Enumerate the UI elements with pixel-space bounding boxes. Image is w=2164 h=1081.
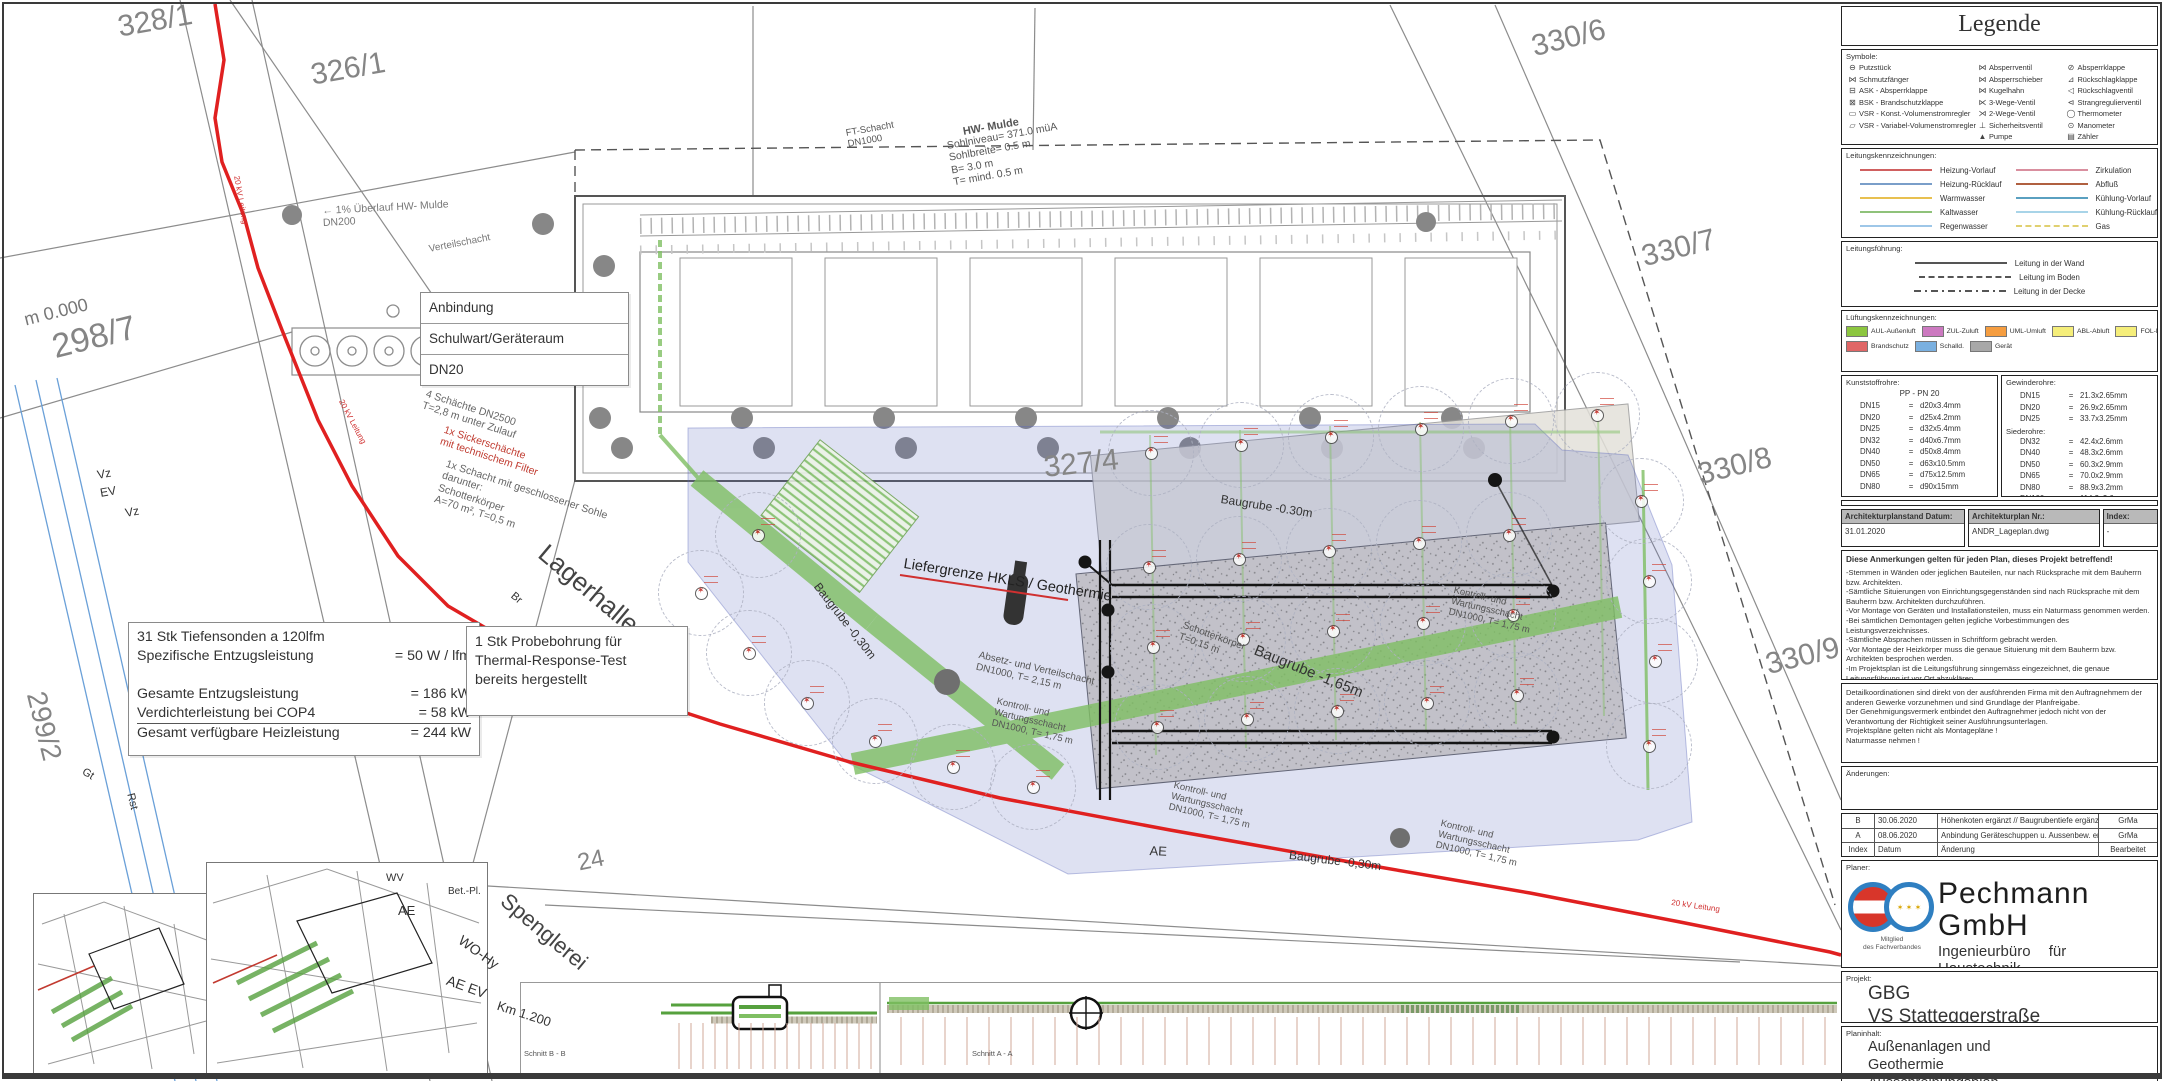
borehole-marker-icon: ✶ — [1145, 560, 1153, 569]
routing-label: Leitung in der Wand — [2015, 259, 2085, 268]
vent-swatch — [2052, 326, 2074, 337]
pipe-size: d20x3.4mm — [1920, 400, 1993, 412]
anbindung-line-2: Schulwart/Geräteraum — [421, 324, 628, 355]
pipe-dn: DN25 — [2006, 413, 2062, 425]
project-label: Projekt: — [1846, 974, 2153, 983]
member-note: Mitglied des Fachverbandes — [1846, 936, 1938, 952]
boiler-pipe-row: DN50=60.3x2.9mm — [2006, 459, 2153, 471]
legend-symbol-item: ⊙Manometer — [2064, 120, 2153, 132]
legend-linetype-item: Warmwasser — [1846, 191, 2002, 205]
borehole-tag — [1652, 729, 1666, 736]
vent-swatch — [1970, 341, 1992, 352]
linetype-sample — [2016, 169, 2088, 171]
annotation-vz-2: Vz — [124, 504, 140, 520]
legend-linetypes-cols: Heizung-VorlaufHeizung-RücklaufWarmwasse… — [1846, 163, 2153, 233]
legend-linetype-col: Heizung-VorlaufHeizung-RücklaufWarmwasse… — [1846, 163, 2002, 233]
legend-symbol-item: ⋈Kugelhahn — [1976, 85, 2065, 97]
arch-plan-index-label: Index: — [2104, 510, 2157, 524]
plan-content-box: Planinhalt: Außenanlagen undGeothermieAu… — [1841, 1026, 2158, 1081]
borehole-marker-icon: ✶ — [1645, 574, 1653, 583]
inset-map-2-drawing — [207, 863, 487, 1077]
pipe-size: d90x15mm — [1920, 481, 1993, 493]
borehole-tag — [1514, 404, 1528, 411]
linetype-label: Heizung-Vorlauf — [1940, 166, 1995, 175]
legend-symbol-glyph-icon: ⊙ — [2064, 121, 2077, 130]
boiler-pipe-row: DN40=48.3x2.6mm — [2006, 447, 2153, 459]
pipe-size: 70.0x2.9mm — [2080, 470, 2153, 482]
vent-label: Schalld. — [1940, 343, 1964, 350]
vent-label: Brandschutz — [1871, 343, 1909, 350]
revision-row: B30.06.2020Höhenkoten ergänzt // Baugrub… — [1842, 814, 2157, 829]
borehole-symbol: ✶ — [1376, 500, 1462, 586]
legend-symbol-item: ◁Rückschlagventil — [2064, 85, 2153, 97]
borehole-tag — [761, 518, 775, 525]
pipe-eq: = — [2062, 447, 2080, 459]
capacity-value: = 186 kW — [411, 685, 471, 704]
boiler-pipes-rows: DN32=42.4x2.6mmDN40=48.3x2.6mmDN50=60.3x… — [2006, 436, 2153, 498]
plan-status-row: Architekturplanstand Datum: 31.01.2020 A… — [1841, 509, 2158, 547]
arch-plan-index-cell: Index: - — [2103, 509, 2158, 547]
legend-vent-box: Lüftungskennzeichnungen: AUL-AußenluftZU… — [1841, 310, 2158, 372]
borehole-tag — [1036, 770, 1050, 777]
plastic-pipe-row: DN65=d75x12.5mm — [1846, 469, 1993, 481]
legend-symbol-label: Absperrklappe — [2077, 63, 2125, 72]
legend-symbol-label: Pumpe — [1989, 132, 2012, 141]
linetype-label: Warmwasser — [1940, 194, 1985, 203]
pipe-dn: DN20 — [1846, 412, 1902, 424]
pipe-size: d63x10.5mm — [1920, 458, 1993, 470]
routing-item: Leitung im Boden — [1846, 270, 2153, 284]
routing-label: Leitung in der Decke — [2014, 287, 2086, 296]
legend-symbol-label: Schmutzfänger — [1859, 75, 1909, 84]
linetype-label: Abfluß — [2096, 180, 2119, 189]
borehole-tag — [1152, 550, 1166, 557]
legend-linetype-item: Regenwasser — [1846, 219, 2002, 233]
legend-symbol-label: BSK - Brandschutzklappe — [1859, 98, 1943, 107]
borehole-symbol: ✶ — [990, 744, 1076, 830]
borehole-marker-icon: ✶ — [1507, 414, 1515, 423]
pipe-dn: DN40 — [1846, 446, 1902, 458]
legend-linetype-item: Gas — [2002, 219, 2158, 233]
legend-symbol-item: ▲Pumpe — [1976, 131, 2065, 143]
legend-symbol-glyph-icon: ⊿ — [2064, 75, 2077, 84]
legend-symbol-label: ASK - Absperrklappe — [1859, 86, 1928, 95]
linetype-sample — [1860, 169, 1932, 171]
vent-swatch — [1922, 326, 1944, 337]
pipe-dn: DN100 — [2006, 493, 2062, 497]
legend-linetype-item: Kühlung-Vorlauf — [2002, 191, 2158, 205]
legend-symbol-label: Zähler — [2077, 132, 2098, 141]
legend-symbol-item: ⊖Putzstück — [1846, 62, 1976, 74]
borehole-tag — [1426, 606, 1440, 613]
borehole-symbol: ✶ — [1106, 524, 1192, 610]
company-name: Pechmann GmbH — [1938, 878, 2153, 941]
pipe-eq: = — [2062, 470, 2080, 482]
borehole-symbol: ✶ — [910, 724, 996, 810]
legend-symbol-item: ⊠BSK - Brandschutzklappe — [1846, 97, 1976, 109]
pipe-eq: = — [1902, 435, 1920, 447]
capacity-row: 31 Stk Tiefensonden a 120lfm — [137, 628, 471, 647]
legend-symbol-glyph-icon: ⋉ — [1976, 98, 1989, 107]
borehole-symbol: ✶ — [1606, 538, 1692, 624]
arch-plan-date-label: Architekturplanstand Datum: — [1842, 510, 1964, 524]
legend-symbol-glyph-icon: ▲ — [1976, 132, 1989, 141]
vent-label: AUL-Außenluft — [1871, 328, 1916, 335]
eu-stars-logo-icon: ✶ ✶ ✶ — [1884, 882, 1934, 932]
plastic-pipe-row: DN15=d20x3.4mm — [1846, 400, 1993, 412]
revision-cell: Datum — [1875, 843, 1938, 857]
annotation-vz-1: Vz — [96, 466, 112, 482]
geothermal-capacity-box: 31 Stk Tiefensonden a 120lfmSpezifische … — [128, 622, 480, 756]
plastic-pipe-row: DN40=d50x8.4mm — [1846, 446, 1993, 458]
pipe-dn: DN20 — [2006, 402, 2062, 414]
annotation-wv: WV — [386, 872, 404, 885]
borehole-marker-icon: ✶ — [1513, 688, 1521, 697]
linetype-sample — [1860, 197, 1932, 199]
borehole-tag — [956, 750, 970, 757]
vent-swatch — [1915, 341, 1937, 352]
note-item: -Sämtliche Situierungen von Einrichtungs… — [1846, 587, 2153, 606]
note2-item: Projektspläne gelten nicht als Montagepl… — [1846, 726, 2153, 736]
plan-content-line: Geothermie — [1846, 1056, 2153, 1074]
inset-map-1 — [33, 893, 222, 1078]
plan-sheet: ✶✶✶✶✶✶✶✶✶✶✶✶✶✶✶✶✶✶✶✶✶✶✶✶✶✶✶✶✶✶✶✶ 328/132… — [0, 0, 2164, 1081]
vent-label: FOL-Fortluft — [2140, 328, 2158, 335]
boiler-pipe-row: DN100=114.3x3.6mm — [2006, 493, 2153, 497]
legend-symbol-label: VSR - Variabel-Volumenstromregler — [1859, 121, 1976, 130]
capacity-value: = 58 kW — [419, 704, 471, 723]
pipe-size: d75x12.5mm — [1920, 469, 1993, 481]
legend-symbol-glyph-icon: ▭ — [1846, 109, 1859, 118]
legend-symbol-glyph-icon: ⋈ — [1846, 75, 1859, 84]
borehole-marker-icon: ✶ — [1149, 640, 1157, 649]
legend-symbol-label: Putzstück — [1859, 63, 1891, 72]
plastic-pipes-label: Kunststoffrohre: — [1846, 378, 1993, 387]
vent-item: UML-Umluft — [1985, 326, 2046, 337]
borehole-tag — [1332, 534, 1346, 541]
revision-cell: Höhenkoten ergänzt // Baugrubentiefe erg… — [1938, 814, 2099, 828]
legend-routing-items: Leitung in der WandLeitung im BodenLeitu… — [1846, 256, 2153, 298]
capacity-value: = 50 W / lfm — [395, 647, 471, 666]
legend-symbol-glyph-icon: ⊖ — [1846, 63, 1859, 72]
pipe-eq: = — [2062, 402, 2080, 414]
vent-item: AUL-Außenluft — [1846, 326, 1916, 337]
pipe-eq: = — [2062, 459, 2080, 471]
company-tagline: Ingenieurbüro für Haustechnik — [1938, 943, 2153, 968]
pipe-dn: DN80 — [1846, 481, 1902, 493]
pipe-size: 60.3x2.9mm — [2080, 459, 2153, 471]
borehole-tag — [1652, 564, 1666, 571]
revision-cell: A — [1842, 829, 1875, 843]
borehole-tag — [1242, 542, 1256, 549]
legend-symbol-glyph-icon: ⋊ — [1976, 109, 1989, 118]
vent-item: Schalld. — [1915, 341, 1964, 352]
borehole-marker-icon: ✶ — [697, 586, 705, 595]
linetype-label: Heizung-Rücklauf — [1940, 180, 2002, 189]
plastic-pipes-header: PP - PN 20 — [1846, 389, 1993, 398]
pipe-eq: = — [2062, 482, 2080, 494]
routing-label: Leitungsführung: — [1846, 244, 2153, 253]
vent-item: ABL-Abluft — [2052, 326, 2110, 337]
plastic-pipes-rows: DN15=d20x3.4mmDN20=d25x4.2mmDN25=d32x5.4… — [1846, 400, 1993, 492]
capacity-label: Gesamt verfügbare Heizleistung — [137, 724, 340, 743]
borehole-symbol: ✶ — [1598, 458, 1684, 544]
note2-item: Detailkoordinationen sind direkt von der… — [1846, 688, 2153, 707]
pipe-eq: = — [1902, 481, 1920, 493]
borehole-tag — [1250, 702, 1264, 709]
borehole-tag — [1246, 622, 1260, 629]
borehole-symbol: ✶ — [1204, 676, 1290, 762]
pipe-eq: = — [1902, 446, 1920, 458]
borehole-tag — [1156, 630, 1170, 637]
capacity-label: 31 Stk Tiefensonden a 120lfm — [137, 628, 325, 647]
linetype-label: Regenwasser — [1940, 222, 1988, 231]
borehole-symbol: ✶ — [1288, 394, 1374, 480]
borehole-marker-icon: ✶ — [871, 734, 879, 743]
boiler-pipe-row: DN65=70.0x2.9mm — [2006, 470, 2153, 482]
legend-symbol-glyph-icon: ◯ — [2064, 109, 2077, 118]
legend-linetype-item: Zirkulation — [2002, 163, 2158, 177]
threaded-pipe-row: DN20=26.9x2.65mm — [2006, 402, 2153, 414]
arch-plan-date-value: 31.01.2020 — [1842, 524, 1964, 539]
pipe-eq: = — [1902, 469, 1920, 481]
borehole-tag — [1154, 436, 1168, 443]
legend-column: Legende Symbole: ⊖Putzstück⋈Schmutzfänge… — [1841, 6, 2158, 1075]
revision-cell: Änderung — [1938, 843, 2099, 857]
legend-symbol-item: ⊥Sicherheitsventil — [1976, 120, 2065, 132]
capacity-label: Gesamte Entzugsleistung — [137, 685, 299, 704]
legend-symbol-item: ⋉3-Wege-Ventil — [1976, 97, 2065, 109]
linetype-sample — [1860, 225, 1932, 227]
linetype-sample — [2016, 211, 2088, 213]
notes2-items: Detailkoordinationen sind direkt von der… — [1846, 688, 2153, 746]
capacity-row: Verdichterleistung bei COP4= 58 kW — [137, 704, 471, 724]
plastic-pipe-row: DN32=d40x6.7mm — [1846, 435, 1993, 447]
borehole-symbol: ✶ — [1114, 684, 1200, 770]
annotation-parcel-24: 24 — [575, 844, 607, 877]
pipe-size: d25x4.2mm — [1920, 412, 1993, 424]
borehole-marker-icon: ✶ — [745, 646, 753, 655]
capacity-label: Spezifische Entzugsleistung — [137, 647, 314, 666]
vent-label: Gerät — [1995, 343, 2012, 350]
borehole-tag — [1422, 526, 1436, 533]
borehole-marker-icon: ✶ — [949, 760, 957, 769]
borehole-symbol: ✶ — [1612, 618, 1698, 704]
borehole-symbol: ✶ — [832, 698, 918, 784]
pipe-size: d50x8.4mm — [1920, 446, 1993, 458]
legend-symbol-glyph-icon: ▱ — [1846, 121, 1859, 130]
pipe-eq: = — [1902, 458, 1920, 470]
arch-plan-nr-cell: Architekturplan Nr.: ANDR_Lageplan.dwg — [1968, 509, 2100, 547]
legend-symbol-item: ⋈Absperrventil — [1976, 62, 2065, 74]
legend-symbol-item: ⊲Strangregulierventil — [2064, 97, 2153, 109]
revision-cell: Index — [1842, 843, 1875, 857]
inset-map-1-drawing — [34, 894, 221, 1077]
borehole-tag — [752, 636, 766, 643]
borehole-marker-icon: ✶ — [754, 528, 762, 537]
probe-drilling-box: 1 Stk Probebohrung für Thermal-Response-… — [466, 626, 688, 716]
legend-symbol-col: ⊘Absperrklappe⊿Rückschlagklappe◁Rückschl… — [2064, 62, 2153, 143]
vent-label: UML-Umluft — [2010, 328, 2046, 335]
vent-item: FOL-Fortluft — [2115, 326, 2158, 337]
annotation-ae-2: AE — [398, 903, 415, 918]
symbols-label: Symbole: — [1846, 52, 2153, 61]
vent-swatch — [1846, 341, 1868, 352]
legend-symbol-item: ⋊2-Wege-Ventil — [1976, 108, 2065, 120]
pipe-size: 26.9x2.65mm — [2080, 402, 2153, 414]
notes-box: Diese Anmerkungen gelten für jeden Plan,… — [1841, 550, 2158, 680]
legend-symbol-label: Absperrschieber — [1989, 75, 2043, 84]
legend-linetype-item: Heizung-Rücklauf — [1846, 177, 2002, 191]
note-item: -Stemmen in Wänden oder jeglichen Bautei… — [1846, 568, 2153, 587]
borehole-marker-icon: ✶ — [1235, 552, 1243, 561]
legend-symbol-label: Absperrventil — [1989, 63, 2032, 72]
pipe-size: 42.4x2.6mm — [2080, 436, 2153, 448]
legend-symbol-item: ▭VSR - Konst.-Volumenstromregler — [1846, 108, 1976, 120]
pipe-size: 48.3x2.6mm — [2080, 447, 2153, 459]
pipe-dn: DN65 — [1846, 469, 1902, 481]
project-box: Projekt: GBG VS Statteggerstraße — [1841, 971, 2158, 1023]
routing-item: Leitung in der Wand — [1846, 256, 2153, 270]
pipe-size: d32x5.4mm — [1920, 423, 1993, 435]
borehole-symbol: ✶ — [1110, 604, 1196, 690]
pipe-eq: = — [2062, 436, 2080, 448]
borehole-tag — [1424, 412, 1438, 419]
legend-symbol-glyph-icon: ▤ — [2064, 132, 2077, 141]
routing-sample — [1915, 262, 2007, 264]
boiler-pipe-row: DN32=42.4x2.6mm — [2006, 436, 2153, 448]
pipe-dn: DN50 — [2006, 459, 2062, 471]
borehole-marker-icon: ✶ — [1637, 494, 1645, 503]
plan-content-line: Ausschreibungsplan — [1846, 1074, 2153, 1081]
borehole-marker-icon: ✶ — [1029, 780, 1037, 789]
legend-symbol-item: ⊟ASK - Absperrklappe — [1846, 85, 1976, 97]
borehole-marker-icon: ✶ — [1147, 446, 1155, 455]
borehole-tag — [1336, 614, 1350, 621]
borehole-symbol: ✶ — [1468, 378, 1554, 464]
plastic-pipes-box: Kunststoffrohre: PP - PN 20 DN15=d20x3.4… — [1841, 375, 1998, 497]
arch-plan-nr-label: Architekturplan Nr.: — [1969, 510, 2099, 524]
note-item: -Bei sämtlichen Demontagen gelten jeglic… — [1846, 616, 2153, 635]
linetypes-label: Leitungskennzeichnungen: — [1846, 151, 2153, 160]
legend-pipes-wrap: Kunststoffrohre: PP - PN 20 DN15=d20x3.4… — [1841, 375, 2158, 497]
planner-box: Planer: ✶ ✶ ✶ Mitglied des Fachverbandes… — [1841, 860, 2158, 968]
borehole-marker-icon: ✶ — [1593, 408, 1601, 417]
borehole-marker-icon: ✶ — [1419, 616, 1427, 625]
revision-table: B30.06.2020Höhenkoten ergänzt // Baugrub… — [1841, 813, 2158, 857]
legend-title: Legende — [1846, 9, 2153, 39]
annotation-schnitt-a: Schnitt A - A — [972, 1050, 1012, 1059]
borehole-tag — [1334, 420, 1348, 427]
borehole-symbol: ✶ — [1466, 492, 1552, 578]
borehole-tag — [704, 576, 718, 583]
capacity-row: Spezifische Entzugsleistung= 50 W / lfm — [137, 647, 471, 666]
pipe-size: d40x6.7mm — [1920, 435, 1993, 447]
borehole-symbol: ✶ — [1606, 703, 1692, 789]
capacity-label: Verdichterleistung bei COP4 — [137, 704, 315, 723]
legend-symbol-label: Strangregulierventil — [2077, 98, 2141, 107]
legend-symbols-cols: ⊖Putzstück⋈Schmutzfänger⊟ASK - Absperrkl… — [1846, 62, 2153, 143]
plastic-pipe-row: DN50=d63x10.5mm — [1846, 458, 1993, 470]
notes2-box: Detailkoordinationen sind direkt von der… — [1841, 683, 2158, 763]
borehole-symbol: ✶ — [1384, 660, 1470, 746]
legend-symbol-item: ⋈Schmutzfänger — [1846, 74, 1976, 86]
revision-cell: Bearbeitet — [2099, 843, 2157, 857]
legend-linetype-item: Heizung-Vorlauf — [1846, 163, 2002, 177]
legend-routing-box: Leitungsführung: Leitung in der WandLeit… — [1841, 241, 2158, 307]
legend-spare-box — [1841, 500, 2158, 506]
section-panel — [520, 982, 1842, 1078]
plan-content-label: Planinhalt: — [1846, 1029, 2153, 1038]
note-item: -Im Projektsplan ist die Leitungsführung… — [1846, 664, 2153, 680]
legend-symbol-glyph-icon: ◁ — [2064, 86, 2077, 95]
borehole-marker-icon: ✶ — [1237, 438, 1245, 447]
pipe-dn: DN15 — [2006, 390, 2062, 402]
borehole-symbol: ✶ — [1474, 652, 1560, 738]
annotation-schnitt-b: Schnitt B - B — [524, 1050, 566, 1059]
pipe-eq: = — [2062, 390, 2080, 402]
legend-symbol-item: ▤Zähler — [2064, 131, 2153, 143]
legend-linetypes-box: Leitungskennzeichnungen: Heizung-Vorlauf… — [1841, 148, 2158, 238]
capacity-row — [137, 666, 471, 685]
legend-title-box: Legende — [1841, 6, 2158, 46]
arch-plan-date-cell: Architekturplanstand Datum: 31.01.2020 — [1841, 509, 1965, 547]
capacity-value: = 244 kW — [411, 724, 471, 743]
notes-title: Diese Anmerkungen gelten für jeden Plan,… — [1846, 555, 2153, 564]
revision-cell: 30.06.2020 — [1875, 814, 1938, 828]
pipe-size: 114.3x3.6mm — [2080, 493, 2153, 497]
pipe-dn: DN50 — [1846, 458, 1902, 470]
borehole-marker-icon: ✶ — [1333, 704, 1341, 713]
vent-swatch — [1985, 326, 2007, 337]
legend-symbol-item: ⊘Absperrklappe — [2064, 62, 2153, 74]
note2-item: Der Genehmigungsvermerk entbindet den Au… — [1846, 707, 2153, 726]
planner-label: Planer: — [1846, 863, 2153, 872]
legend-symbol-label: Rückschlagventil — [2077, 86, 2132, 95]
threaded-pipe-row: DN25=33.7x3.25mm — [2006, 413, 2153, 425]
pipe-dn: DN15 — [1846, 400, 1902, 412]
revision-cell: GrMa — [2099, 829, 2157, 843]
capacity-row: Gesamte Entzugsleistung= 186 kW — [137, 685, 471, 704]
borehole-symbol: ✶ — [1378, 386, 1464, 472]
legend-symbol-glyph-icon: ⋈ — [1976, 86, 1989, 95]
anbindung-line-1: Anbindung — [421, 293, 628, 324]
borehole-tag — [1430, 686, 1444, 693]
borehole-tag — [878, 724, 892, 731]
legend-symbol-item: ⊿Rückschlagklappe — [2064, 74, 2153, 86]
legend-symbol-item: ▱VSR - Variabel-Volumenstromregler — [1846, 120, 1976, 132]
legend-symbol-label: Rückschlagklappe — [2077, 75, 2137, 84]
legend-symbol-label: 2-Wege-Ventil — [1989, 109, 2035, 118]
linetype-label: Kühlung-Rücklauf — [2096, 208, 2158, 217]
threaded-pipe-row: DN15=21.3x2.65mm — [2006, 390, 2153, 402]
linetype-label: Zirkulation — [2096, 166, 2132, 175]
legend-linetype-item: Kaltwasser — [1846, 205, 2002, 219]
linetype-label: Kaltwasser — [1940, 208, 1978, 217]
pipe-dn: DN32 — [1846, 435, 1902, 447]
boiler-pipe-row: DN80=88.9x3.2mm — [2006, 482, 2153, 494]
anbindung-callout: Anbindung Schulwart/Geräteraum DN20 — [420, 292, 629, 386]
borehole-marker-icon: ✶ — [1651, 654, 1659, 663]
note-item: -Sämtliche Absprachen müssen in Schriftf… — [1846, 635, 2153, 645]
pipe-eq: = — [1902, 423, 1920, 435]
vent-item: Brandschutz — [1846, 341, 1909, 352]
inset-map-2 — [206, 862, 488, 1078]
legend-symbol-glyph-icon: ⊥ — [1976, 121, 1989, 130]
pipe-size: 33.7x3.25mm — [2080, 413, 2153, 425]
borehole-marker-icon: ✶ — [1415, 536, 1423, 545]
borehole-tag — [1244, 428, 1258, 435]
